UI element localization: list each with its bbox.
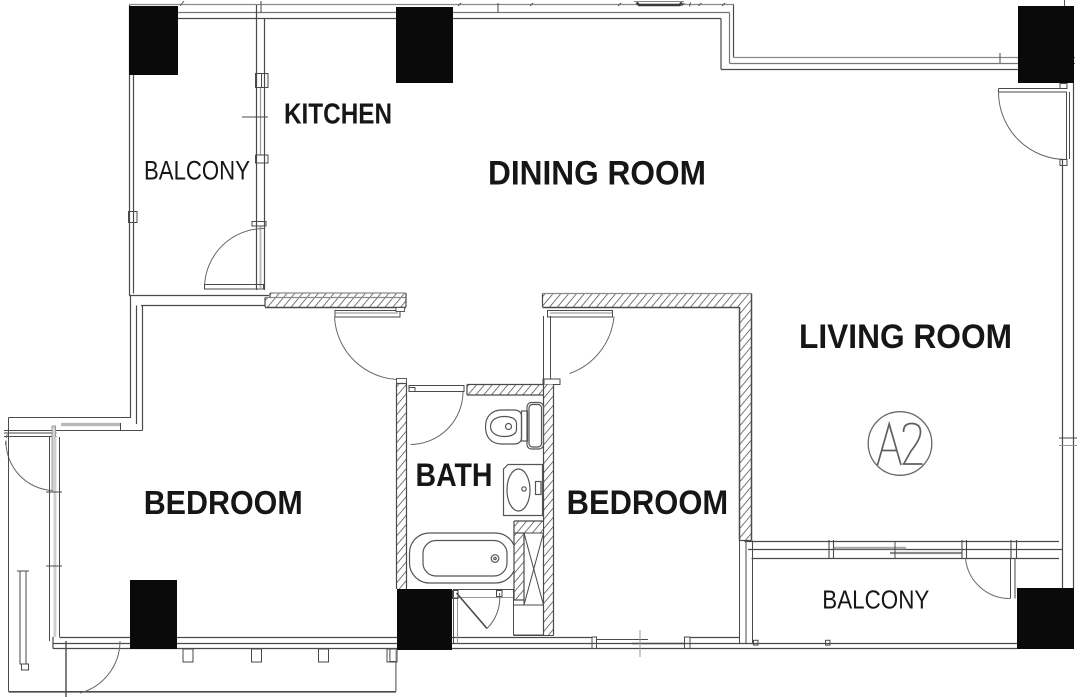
svg-text:BEDROOM: BEDROOM (567, 484, 729, 522)
svg-text:DINING ROOM: DINING ROOM (488, 155, 706, 193)
svg-text:BEDROOM: BEDROOM (144, 485, 303, 522)
svg-text:BATH: BATH (416, 457, 493, 493)
svg-text:KITCHEN: KITCHEN (284, 99, 392, 131)
svg-text:BALCONY: BALCONY (822, 585, 929, 615)
svg-text:BALCONY: BALCONY (144, 156, 250, 186)
svg-text:LIVING ROOM: LIVING ROOM (799, 318, 1012, 356)
